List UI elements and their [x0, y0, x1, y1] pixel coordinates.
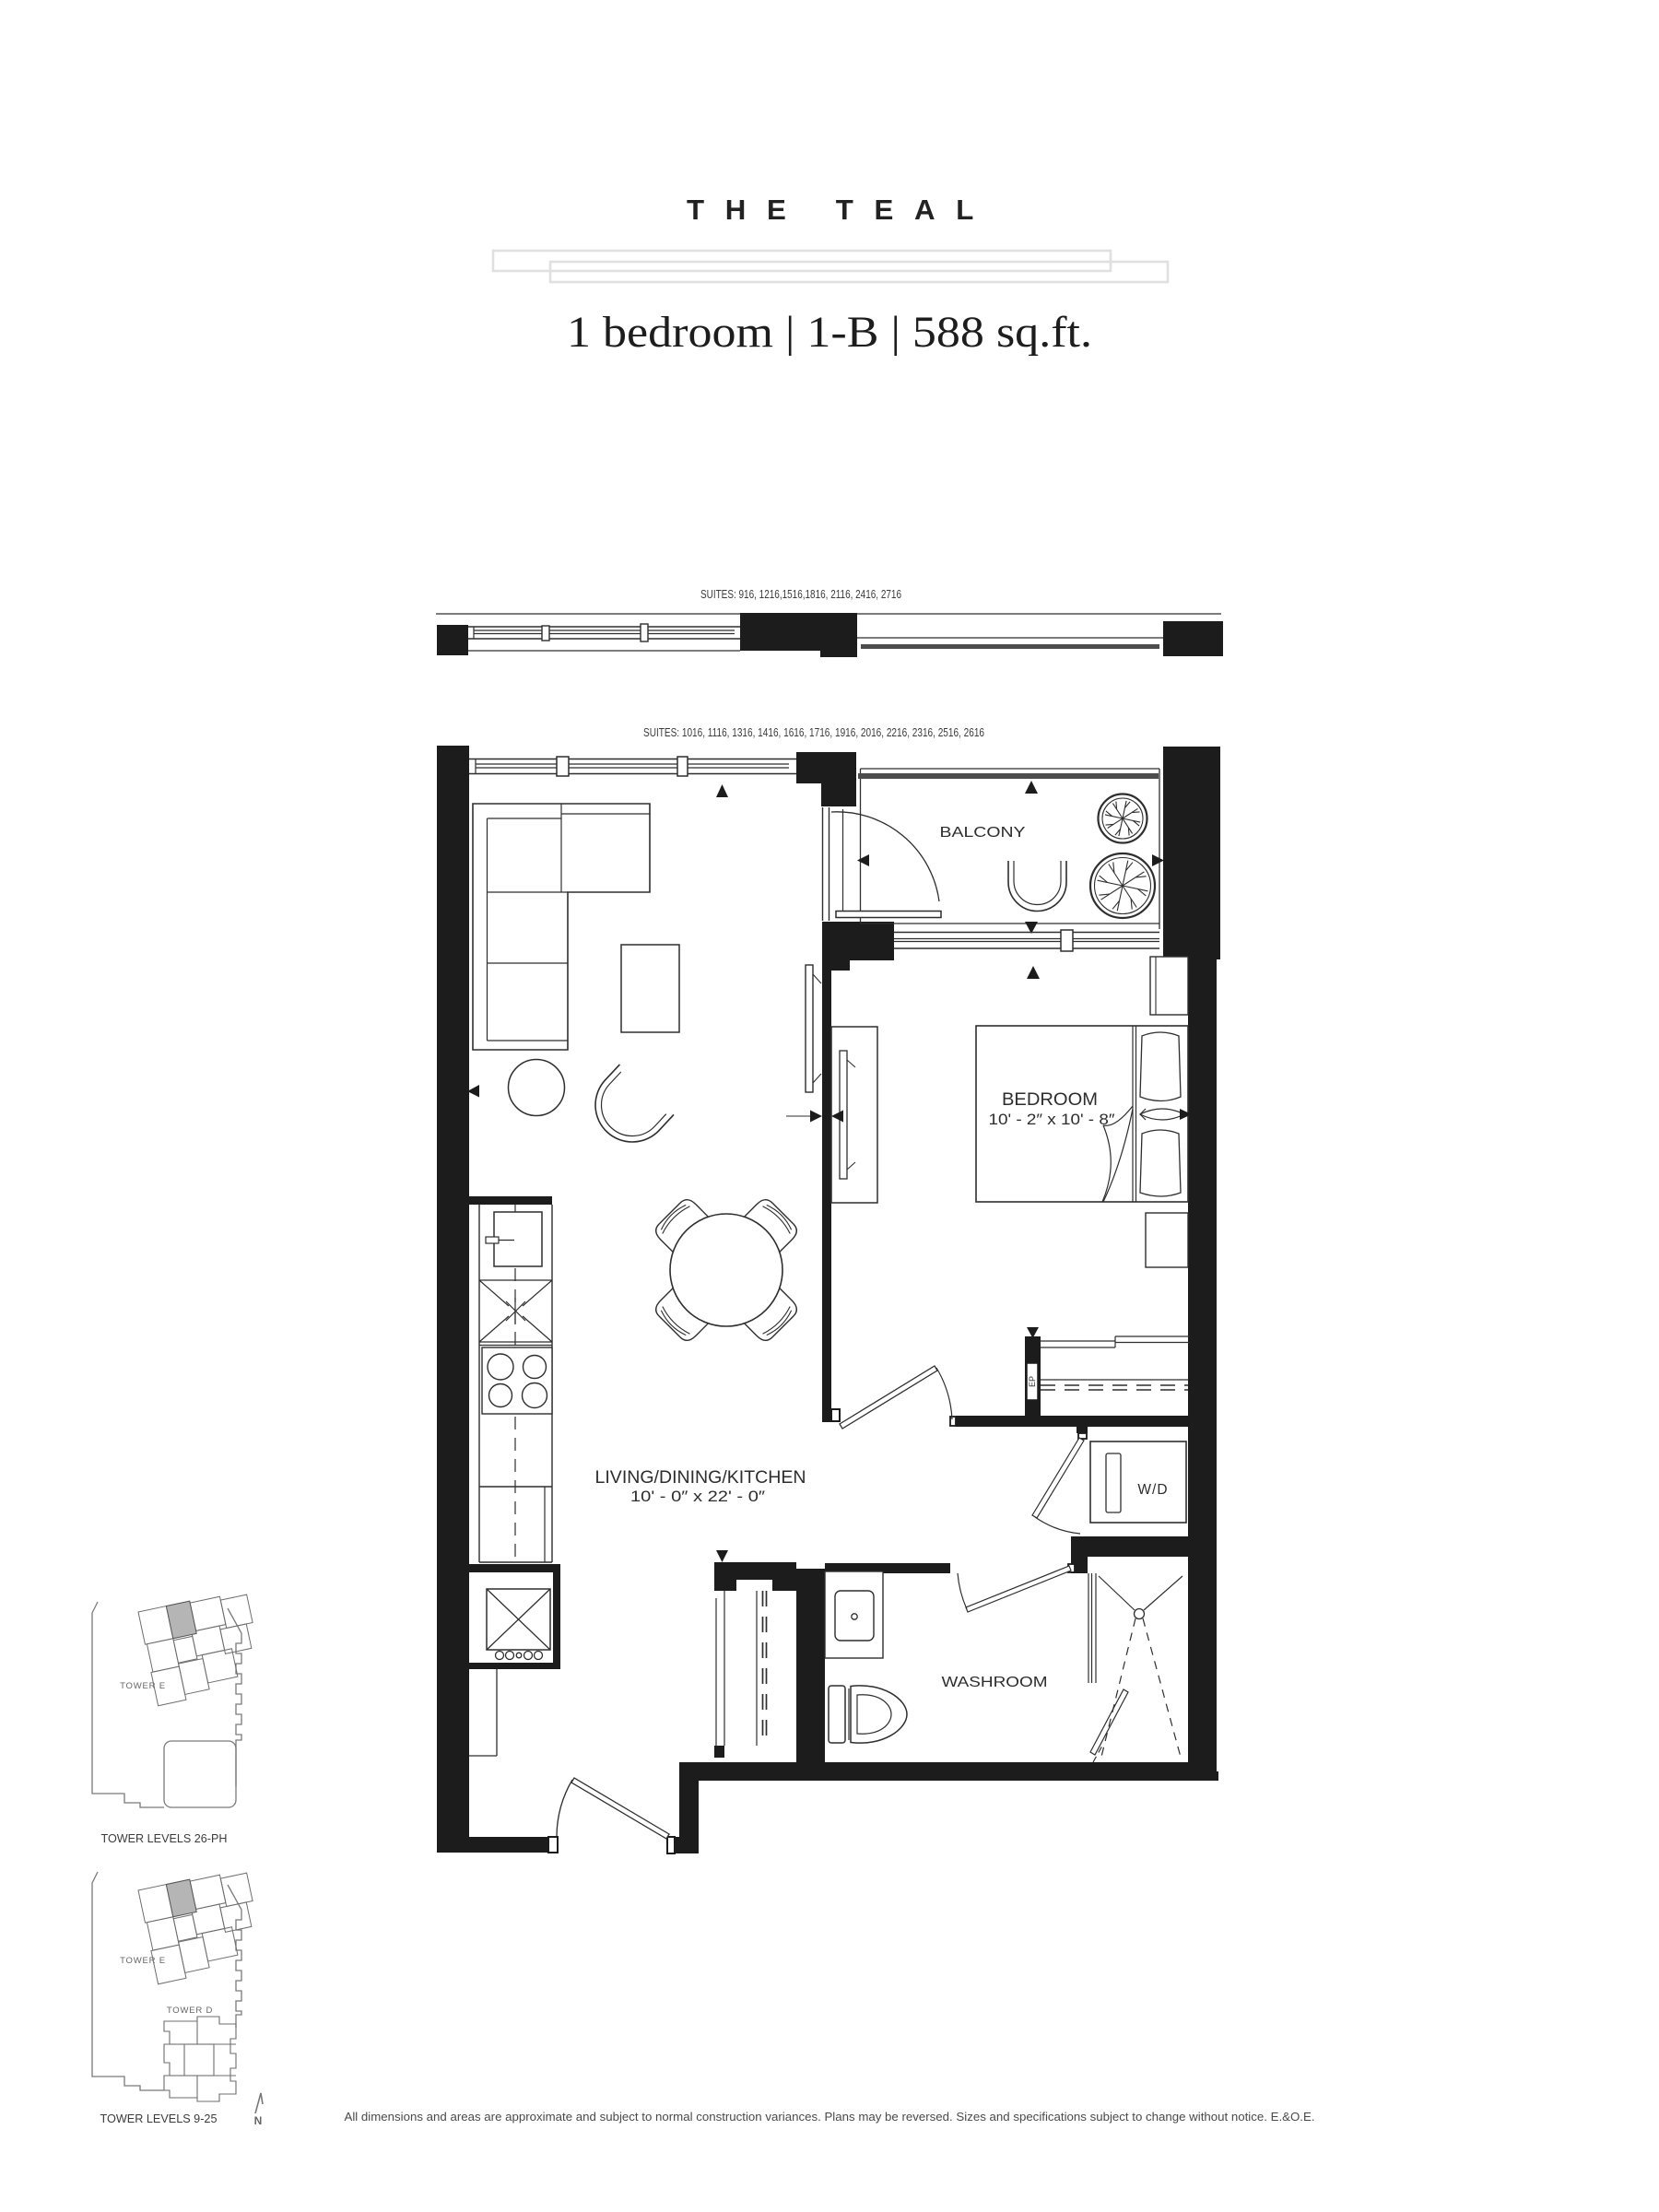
svg-text:SUITES: 916, 1216,1516,1816, 2: SUITES: 916, 1216,1516,1816, 2116, 2416,…	[700, 588, 901, 601]
svg-text:W/D: W/D	[1137, 1482, 1168, 1498]
svg-text:All dimensions and areas are a: All dimensions and areas are approximate…	[345, 2111, 1315, 2124]
svg-text:BALCONY: BALCONY	[940, 825, 1026, 841]
svg-text:BEDROOM: BEDROOM	[1002, 1090, 1098, 1110]
svg-text:TOWER D: TOWER D	[167, 2006, 213, 2016]
svg-text:TOWER E: TOWER E	[120, 1681, 166, 1691]
svg-text:TOWER LEVELS 26-PH: TOWER LEVELS 26-PH	[101, 1831, 228, 1845]
svg-text:THE TEAL: THE TEAL	[687, 194, 994, 226]
svg-text:N: N	[254, 2114, 263, 2127]
svg-text:EP: EP	[1028, 1376, 1037, 1387]
svg-text:LIVING/DINING/KITCHEN: LIVING/DINING/KITCHEN	[595, 1468, 806, 1488]
svg-text:SUITES: 1016, 1116, 1316, 1416: SUITES: 1016, 1116, 1316, 1416, 1616, 17…	[643, 726, 984, 739]
svg-text:10' - 0″ x 22' - 0″: 10' - 0″ x 22' - 0″	[630, 1488, 765, 1505]
svg-text:1 bedroom | 1-B | 588 sq.ft.: 1 bedroom | 1-B | 588 sq.ft.	[567, 308, 1092, 357]
svg-text:TOWER LEVELS 9-25: TOWER LEVELS 9-25	[100, 2112, 218, 2125]
svg-text:TOWER E: TOWER E	[120, 1956, 166, 1966]
svg-text:WASHROOM: WASHROOM	[942, 1675, 1048, 1690]
svg-text:10' - 2″ x 10' - 8″: 10' - 2″ x 10' - 8″	[989, 1111, 1115, 1128]
